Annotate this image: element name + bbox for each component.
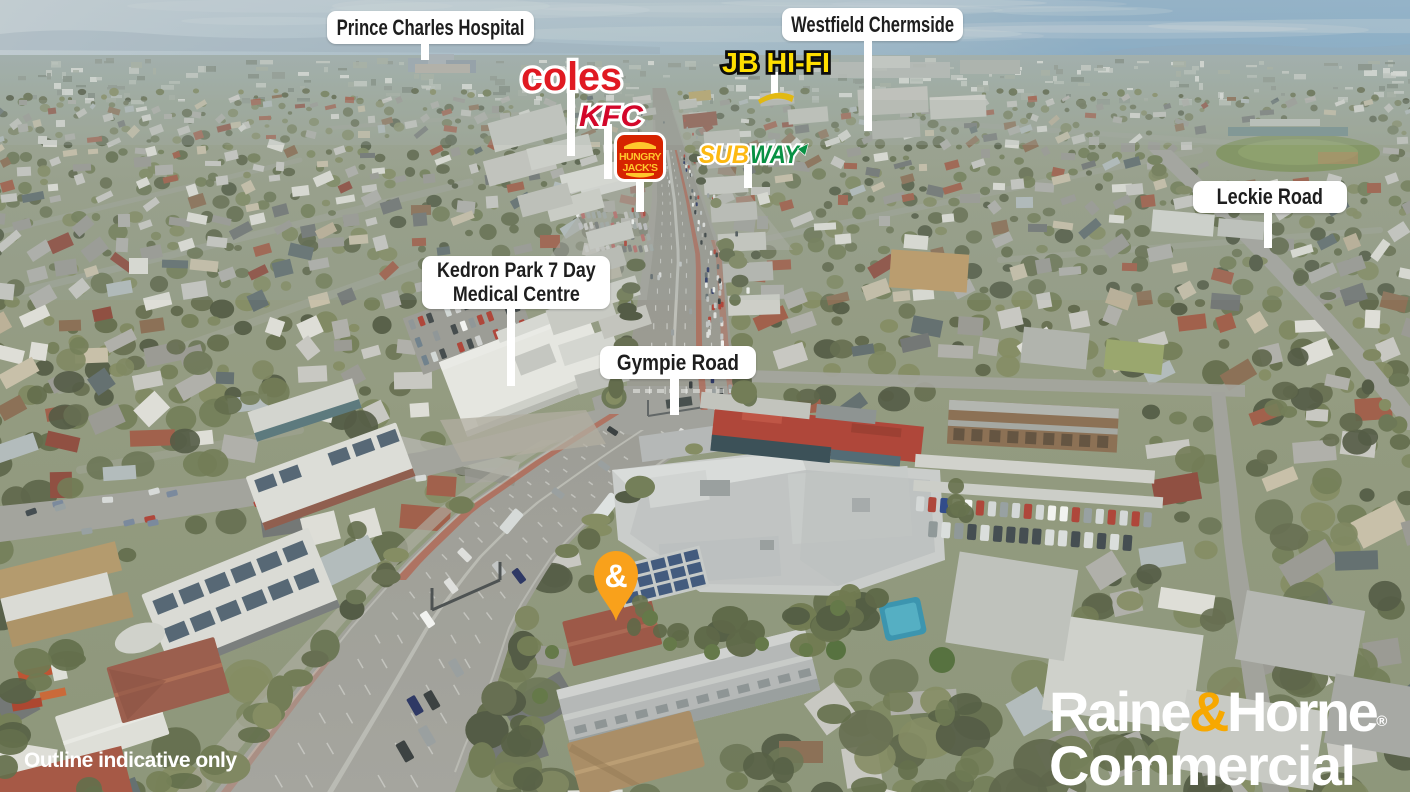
svg-text:JB HI-FI: JB HI-FI — [722, 47, 830, 78]
svg-text:WAY: WAY — [750, 141, 801, 169]
svg-text:KFC: KFC — [579, 100, 644, 132]
svg-text:&: & — [604, 558, 627, 594]
svg-text:JACK'S: JACK'S — [622, 162, 658, 174]
svg-text:coles: coles — [521, 55, 622, 96]
svg-text:SUB: SUB — [699, 141, 749, 169]
